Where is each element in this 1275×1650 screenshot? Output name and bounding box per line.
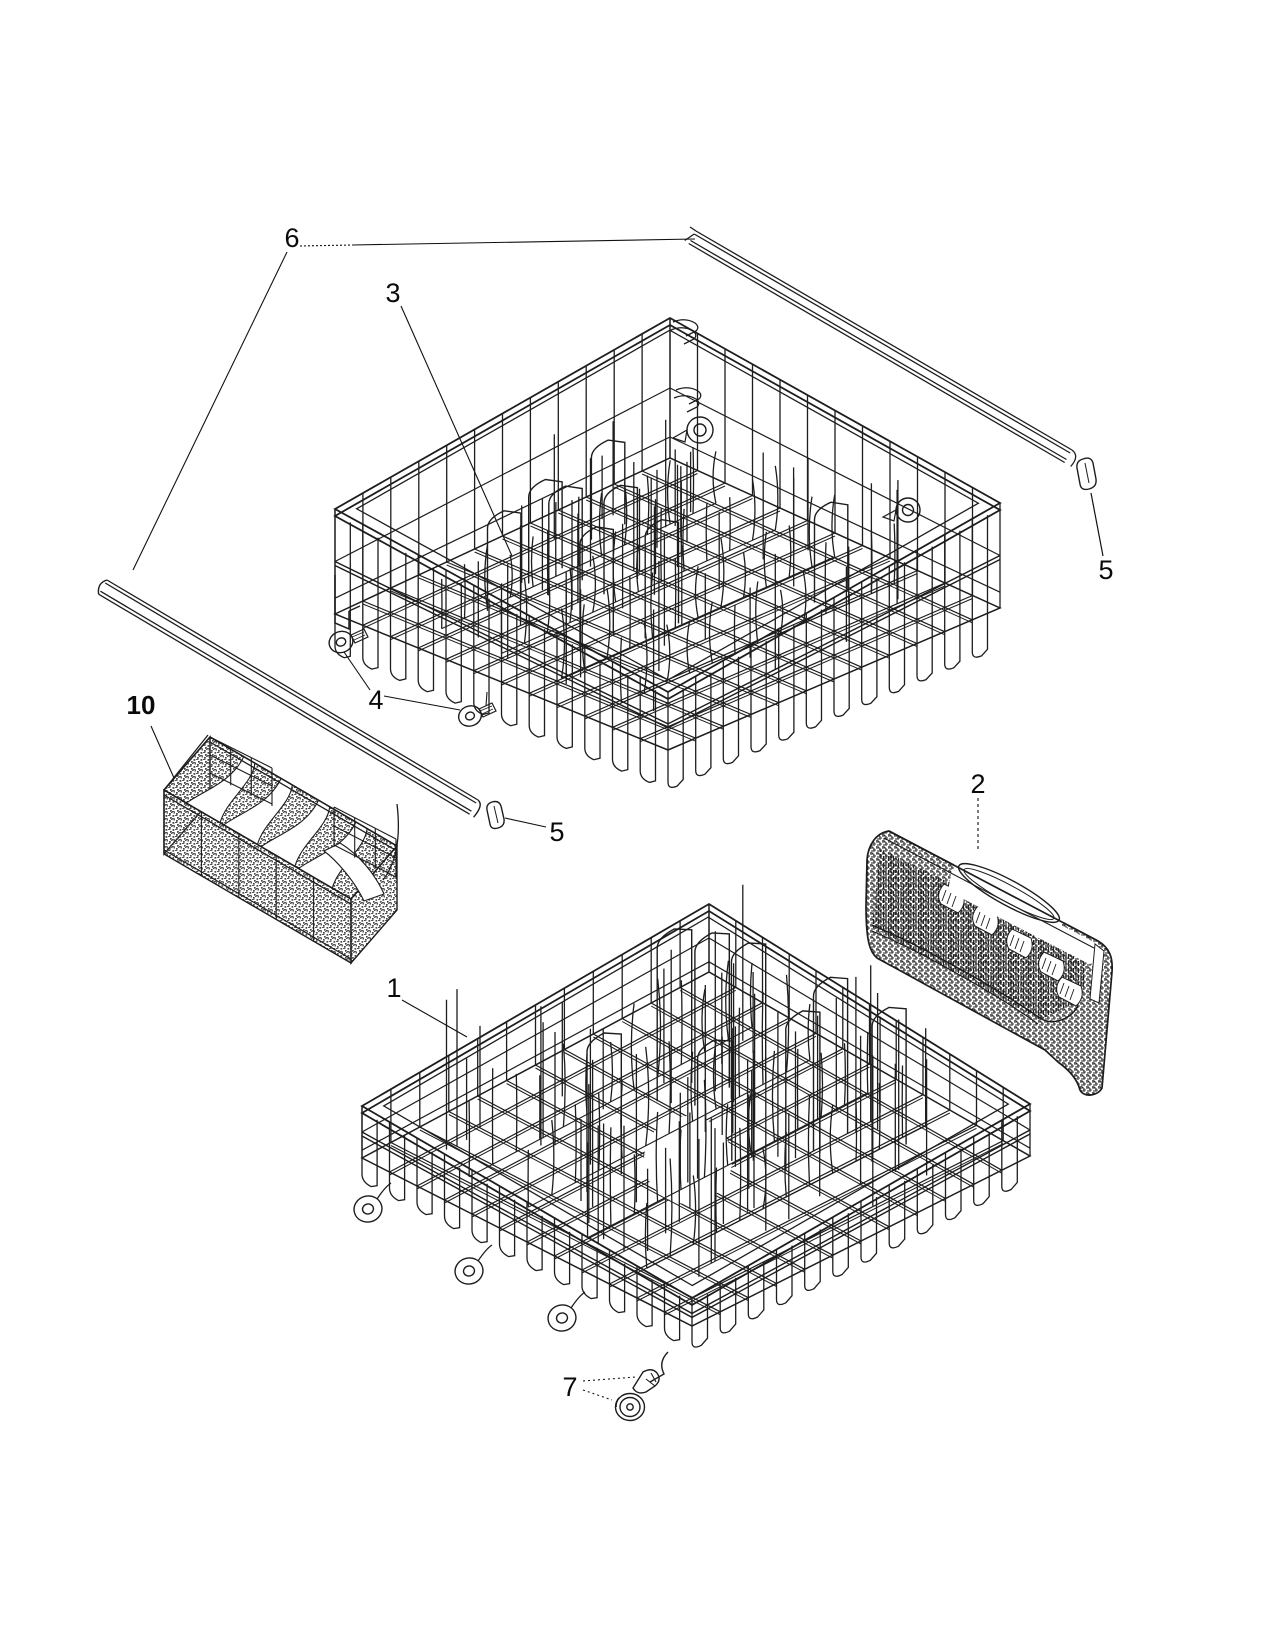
svg-text:2: 2: [970, 769, 985, 799]
svg-text:7: 7: [562, 1372, 577, 1402]
svg-text:4: 4: [368, 685, 383, 715]
svg-text:3: 3: [385, 278, 400, 308]
svg-text:5: 5: [549, 817, 564, 847]
svg-text:1: 1: [386, 973, 401, 1003]
svg-text:5: 5: [1098, 555, 1113, 585]
svg-text:6: 6: [284, 223, 299, 253]
svg-text:10: 10: [127, 690, 156, 720]
